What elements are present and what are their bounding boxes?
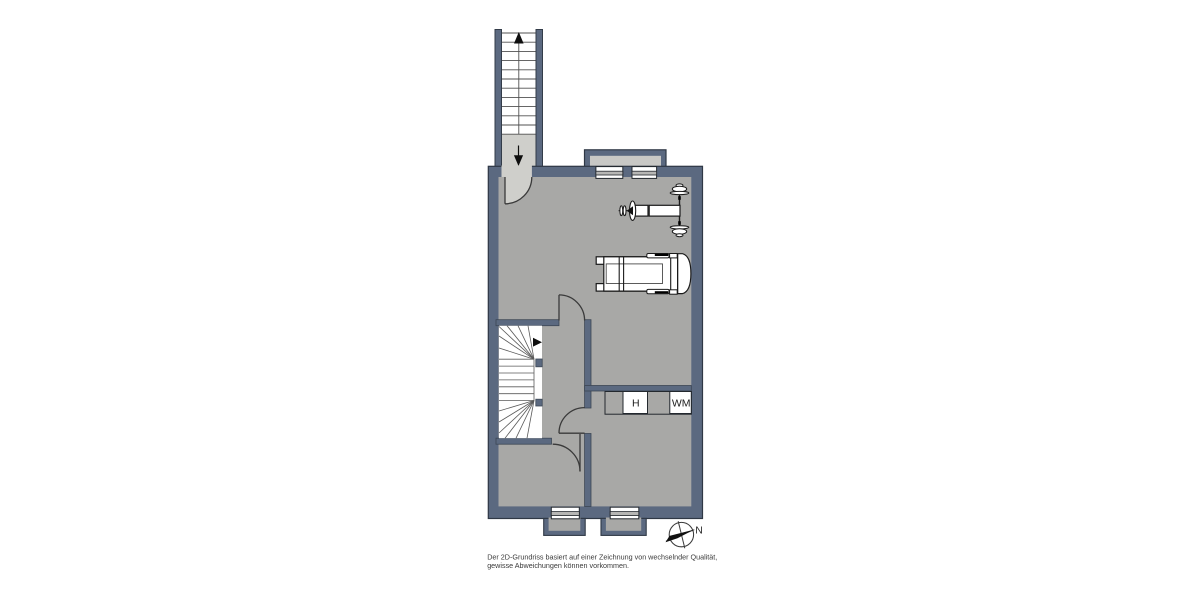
svg-text:H: H — [632, 397, 640, 409]
svg-text:N: N — [695, 525, 703, 537]
svg-text:gewisse Abweichungen können vo: gewisse Abweichungen können vorkommen. — [487, 561, 629, 570]
svg-text:WM: WM — [672, 397, 691, 409]
